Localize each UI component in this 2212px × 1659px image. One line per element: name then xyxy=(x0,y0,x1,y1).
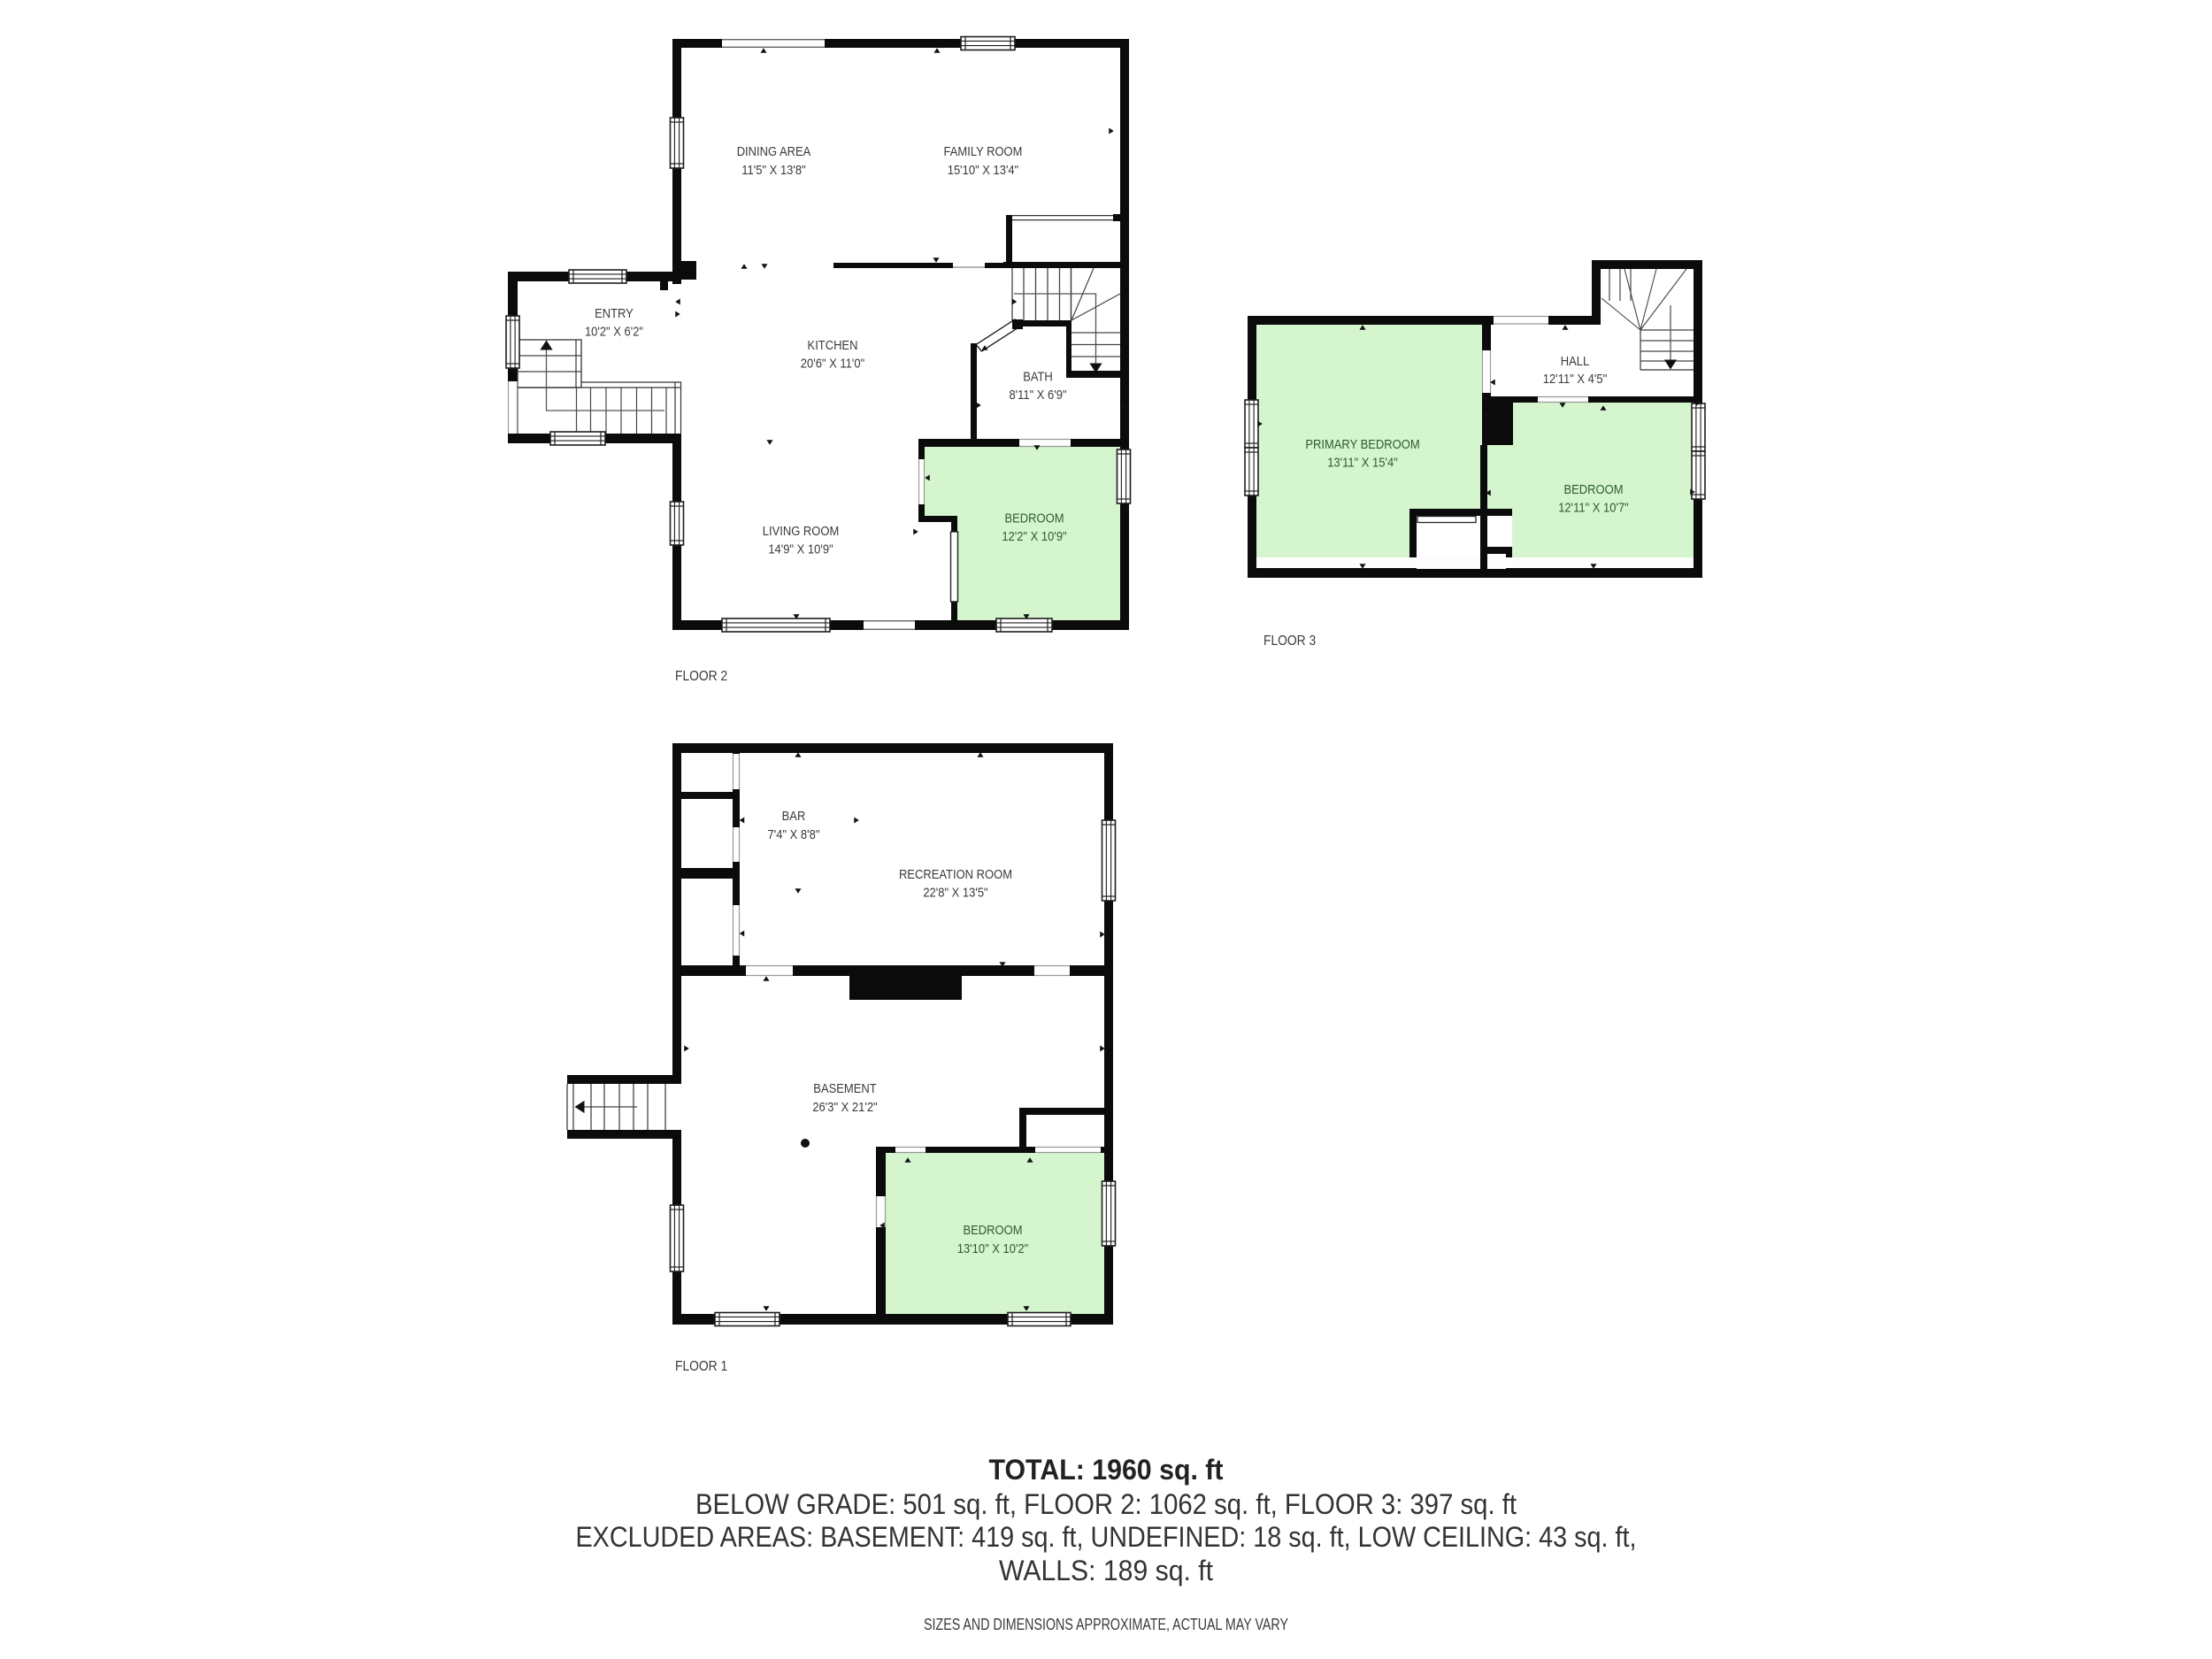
svg-text:LIVING ROOM: LIVING ROOM xyxy=(763,524,840,539)
svg-text:8'11" X 6'9": 8'11" X 6'9" xyxy=(1009,388,1066,403)
svg-text:TOTAL: 1960 sq. ft: TOTAL: 1960 sq. ft xyxy=(989,1454,1224,1486)
svg-text:26'3" X 21'2": 26'3" X 21'2" xyxy=(812,1100,877,1115)
svg-text:FLOOR 1: FLOOR 1 xyxy=(675,1359,727,1374)
svg-text:22'8" X 13'5": 22'8" X 13'5" xyxy=(923,886,987,901)
svg-text:PRIMARY BEDROOM: PRIMARY BEDROOM xyxy=(1305,437,1419,452)
svg-text:10'2" X 6'2": 10'2" X 6'2" xyxy=(585,325,643,340)
svg-text:13'11" X 15'4": 13'11" X 15'4" xyxy=(1327,456,1398,471)
svg-text:BAR: BAR xyxy=(782,809,806,824)
svg-text:BEDROOM: BEDROOM xyxy=(1564,482,1624,497)
svg-text:RECREATION ROOM: RECREATION ROOM xyxy=(899,867,1012,882)
svg-text:13'10" X 10'2": 13'10" X 10'2" xyxy=(957,1241,1029,1256)
svg-text:14'9" X 10'9": 14'9" X 10'9" xyxy=(768,542,833,557)
svg-text:BELOW GRADE: 501 sq. ft, FLOOR: BELOW GRADE: 501 sq. ft, FLOOR 2: 1062 s… xyxy=(695,1488,1517,1520)
svg-text:EXCLUDED AREAS: BASEMENT: 419: EXCLUDED AREAS: BASEMENT: 419 sq. ft, UN… xyxy=(576,1521,1637,1553)
svg-text:BEDROOM: BEDROOM xyxy=(1005,511,1064,526)
svg-text:BEDROOM: BEDROOM xyxy=(964,1223,1023,1238)
svg-text:ENTRY: ENTRY xyxy=(595,306,634,321)
svg-text:12'2" X 10'9": 12'2" X 10'9" xyxy=(1002,529,1066,544)
svg-text:DINING AREA: DINING AREA xyxy=(737,144,811,159)
svg-text:HALL: HALL xyxy=(1561,354,1590,369)
svg-text:7'4" X 8'8": 7'4" X 8'8" xyxy=(768,827,820,842)
svg-text:BATH: BATH xyxy=(1023,370,1053,385)
svg-text:BASEMENT: BASEMENT xyxy=(813,1081,876,1096)
svg-text:FAMILY ROOM: FAMILY ROOM xyxy=(944,144,1023,159)
svg-text:SIZES AND DIMENSIONS APPROXIMA: SIZES AND DIMENSIONS APPROXIMATE, ACTUAL… xyxy=(924,1616,1288,1633)
svg-text:KITCHEN: KITCHEN xyxy=(808,338,858,353)
svg-text:11'5" X 13'8": 11'5" X 13'8" xyxy=(741,163,805,178)
svg-text:FLOOR 2: FLOOR 2 xyxy=(675,669,727,684)
svg-text:20'6" X 11'0": 20'6" X 11'0" xyxy=(801,357,864,372)
svg-text:WALLS: 189 sq. ft: WALLS: 189 sq. ft xyxy=(999,1555,1213,1586)
svg-text:15'10" X 13'4": 15'10" X 13'4" xyxy=(948,163,1019,178)
svg-text:12'11" X 4'5": 12'11" X 4'5" xyxy=(1543,372,1607,387)
svg-text:12'11" X 10'7": 12'11" X 10'7" xyxy=(1558,501,1629,516)
svg-text:FLOOR 3: FLOOR 3 xyxy=(1263,634,1316,649)
